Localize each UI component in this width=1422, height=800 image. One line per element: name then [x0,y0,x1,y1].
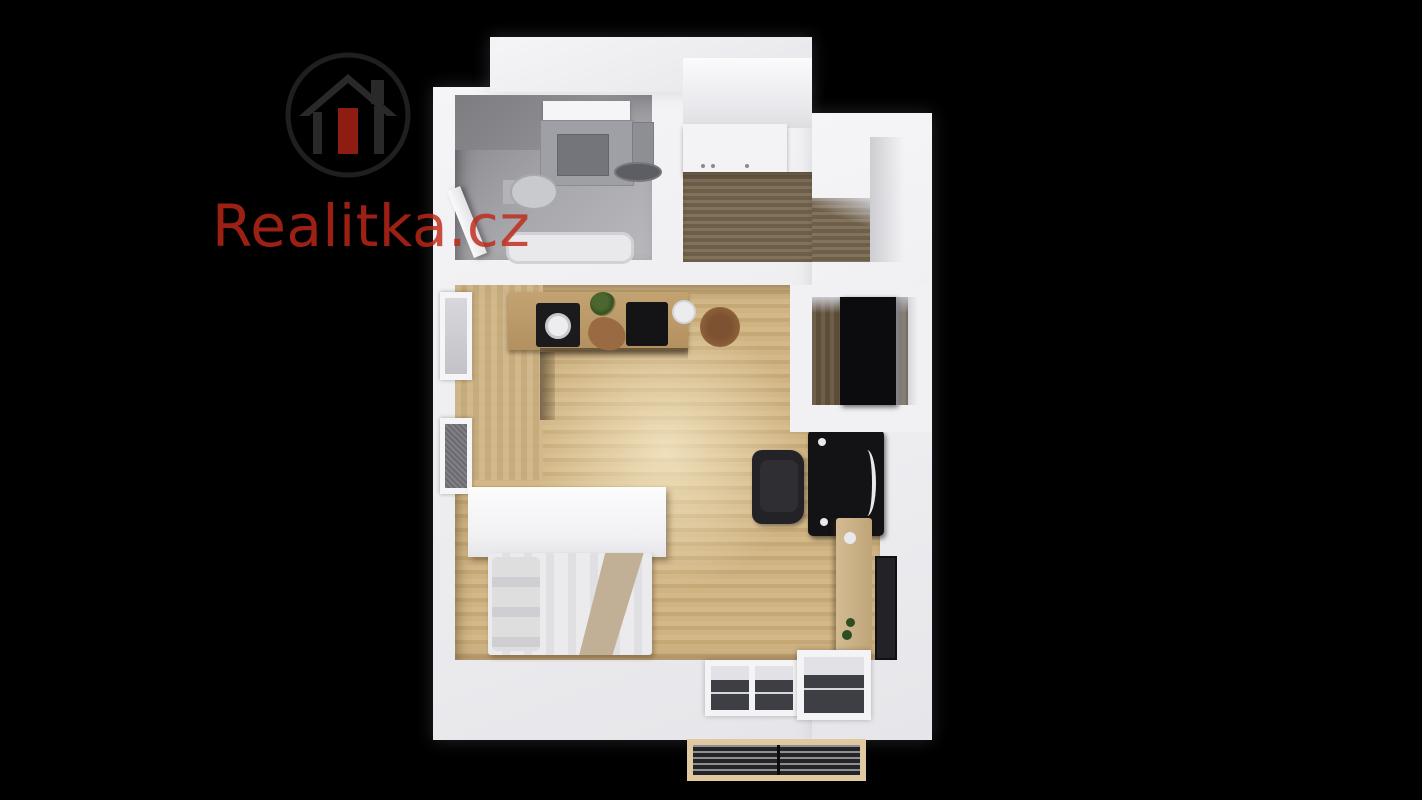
closet-handle-icon [701,164,705,168]
kitchen-sink [626,302,668,346]
living-window-lower [440,418,472,494]
office-chair [752,450,804,524]
balcony-divider [777,745,780,775]
bed [488,553,652,655]
window-glass [445,424,467,488]
window-glass [445,298,467,374]
hall-north-wall [683,58,812,128]
white-wardrobe [468,487,666,557]
window-pane [711,666,749,710]
balcony [687,739,866,781]
cooking-pot [545,313,571,339]
house-logo-icon [283,50,413,180]
desk-monitor-arc [858,450,876,516]
white-bowl [672,300,696,324]
kitchen-counter-return-shadow [540,352,555,420]
desk-item [820,518,828,526]
bathroom-vanity-shelf [543,101,630,120]
bottom-window-large [797,650,871,720]
bottom-window-double [705,660,799,716]
bathroom-sink [557,134,609,176]
brand-text: Realitka.cz [212,197,530,255]
office-chair-seat [760,460,798,512]
closet-handle-icon [711,164,715,168]
wardrobe-room-east-wall-shadow [896,297,918,405]
hall-east-wall-shadow [870,137,908,262]
window-pane [755,666,793,710]
round-serving-board [700,307,740,347]
desk-item [818,438,826,446]
hall-extension-wall-shadow [812,198,870,232]
closet-handle-icon [745,164,749,168]
tv-on-wall [875,556,897,660]
sideboard-plant [842,630,852,640]
apartment-floorplan-image [0,0,1422,800]
sideboard [836,518,872,654]
window-pane [804,657,864,713]
wardrobe-room [790,285,932,432]
sideboard-decor [844,532,856,544]
sideboard-plant [846,618,855,627]
kitchen-plant [590,292,616,316]
black-wardrobe [840,297,896,405]
laundry-basket [614,162,662,182]
bed-blanket [548,553,652,655]
bed-pillows [492,557,540,651]
living-window-upper [440,292,472,380]
hall-floor [683,172,812,262]
hall-closet [683,124,787,174]
screenshot-canvas: Realitka.cz [0,0,1422,800]
